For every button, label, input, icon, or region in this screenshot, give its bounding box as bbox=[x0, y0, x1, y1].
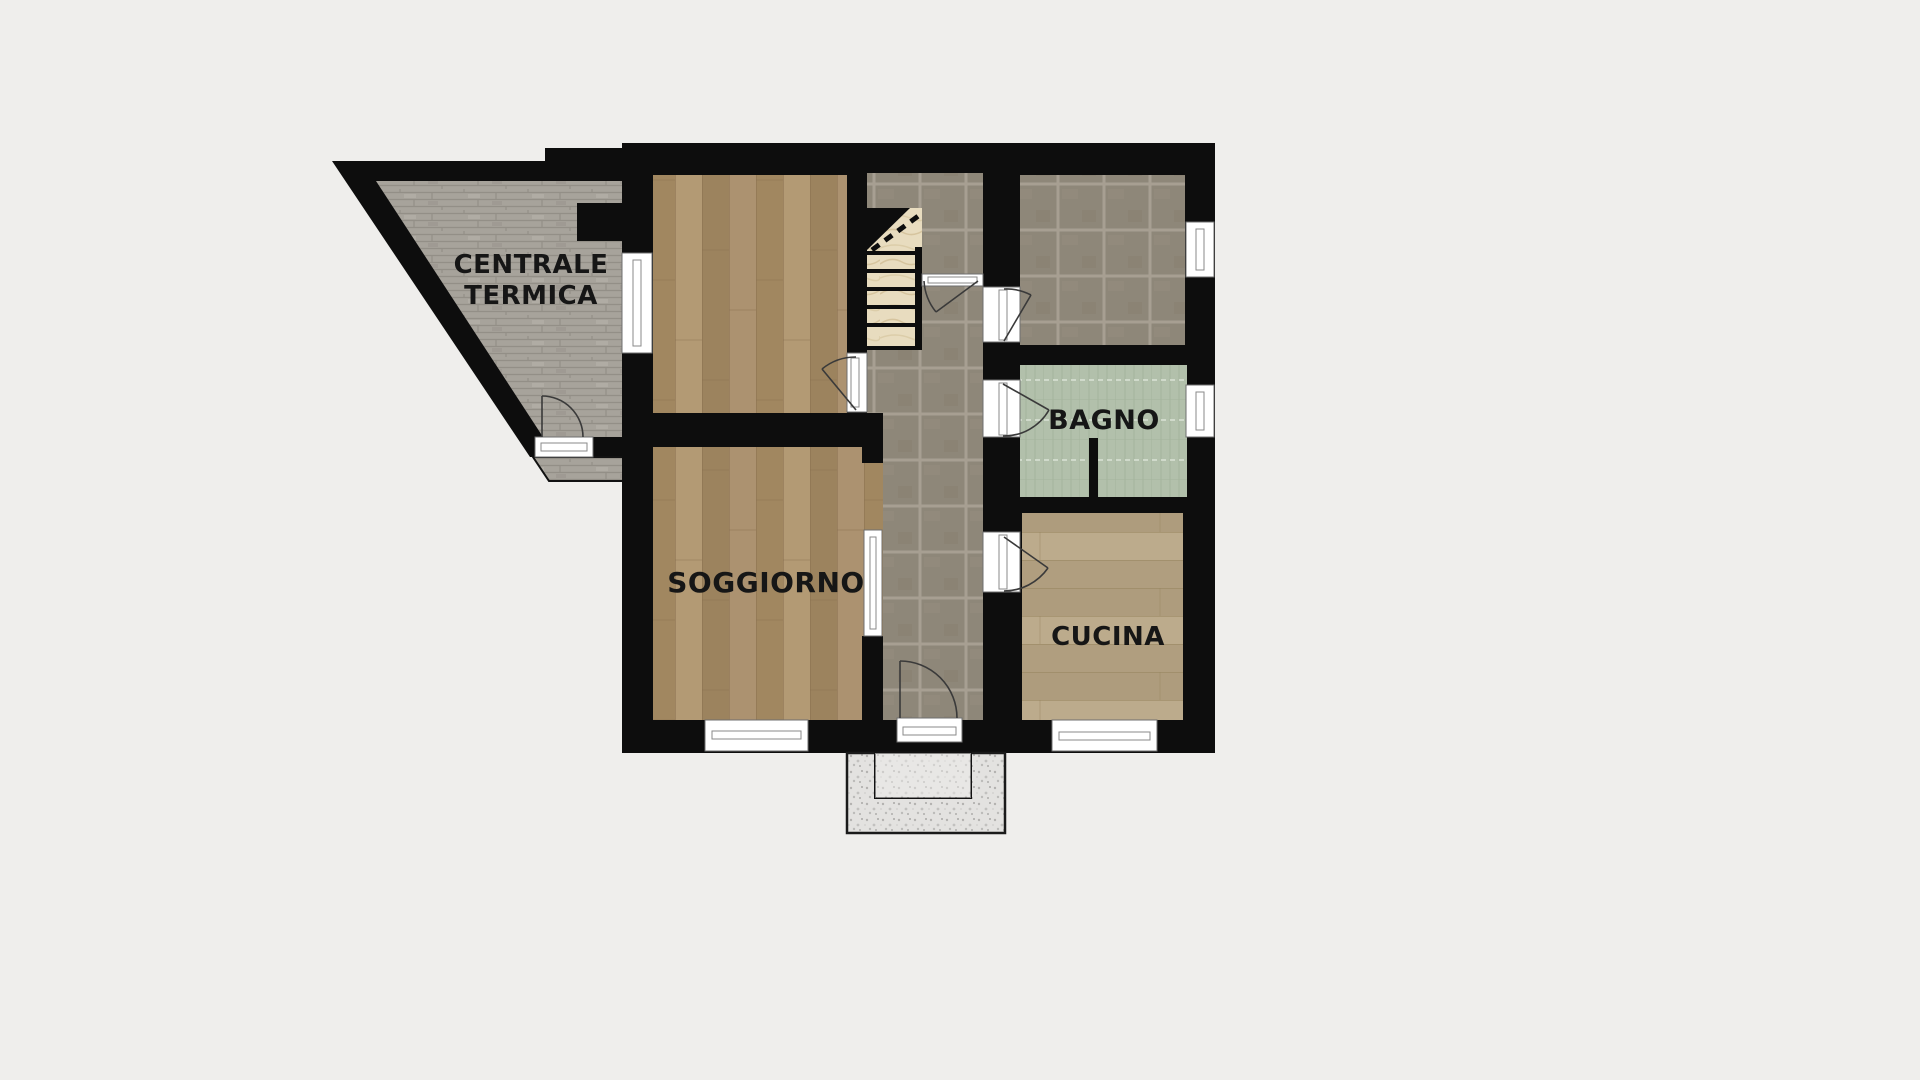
soggiorno-hall-wall-lower bbox=[862, 636, 883, 720]
soggiorno-label: SOGGIORNO bbox=[667, 566, 864, 599]
bagno-label: BAGNO bbox=[1048, 405, 1160, 436]
room-centrale-termica: CENTRALE TERMICA bbox=[332, 148, 625, 481]
floor-plan: CENTRALE TERMICA bbox=[0, 0, 1920, 1080]
upper-left-room-floor bbox=[653, 175, 847, 413]
entrance-porch bbox=[847, 753, 1005, 833]
window-upper-right-room-east bbox=[1186, 222, 1214, 277]
centrale-termica-label-line2: TERMICA bbox=[464, 281, 598, 311]
annex-wall-step bbox=[545, 148, 625, 180]
floor-plan-page: CENTRALE TERMICA bbox=[0, 0, 1920, 1080]
annex-pillar bbox=[577, 203, 622, 241]
window-soggiorno-south bbox=[705, 720, 808, 751]
upper-right-room-floor bbox=[1020, 175, 1185, 345]
centrale-termica-label-line1: CENTRALE bbox=[454, 250, 609, 280]
staircase bbox=[867, 208, 922, 350]
porch-step-texture bbox=[875, 753, 971, 798]
glazed-panel-soggiorno-hall bbox=[864, 530, 882, 636]
soggiorno-hall-wall-stub bbox=[862, 413, 883, 463]
cucina-floor bbox=[1022, 513, 1183, 720]
bagno-partition-stub bbox=[1089, 438, 1098, 497]
window-annex-shared-wall bbox=[622, 253, 652, 353]
stair-stringer bbox=[915, 247, 922, 350]
window-cucina-south bbox=[1052, 720, 1157, 751]
cucina-label: CUCINA bbox=[1051, 622, 1165, 652]
window-bagno-east bbox=[1186, 385, 1214, 437]
annex-ledge bbox=[533, 457, 623, 481]
